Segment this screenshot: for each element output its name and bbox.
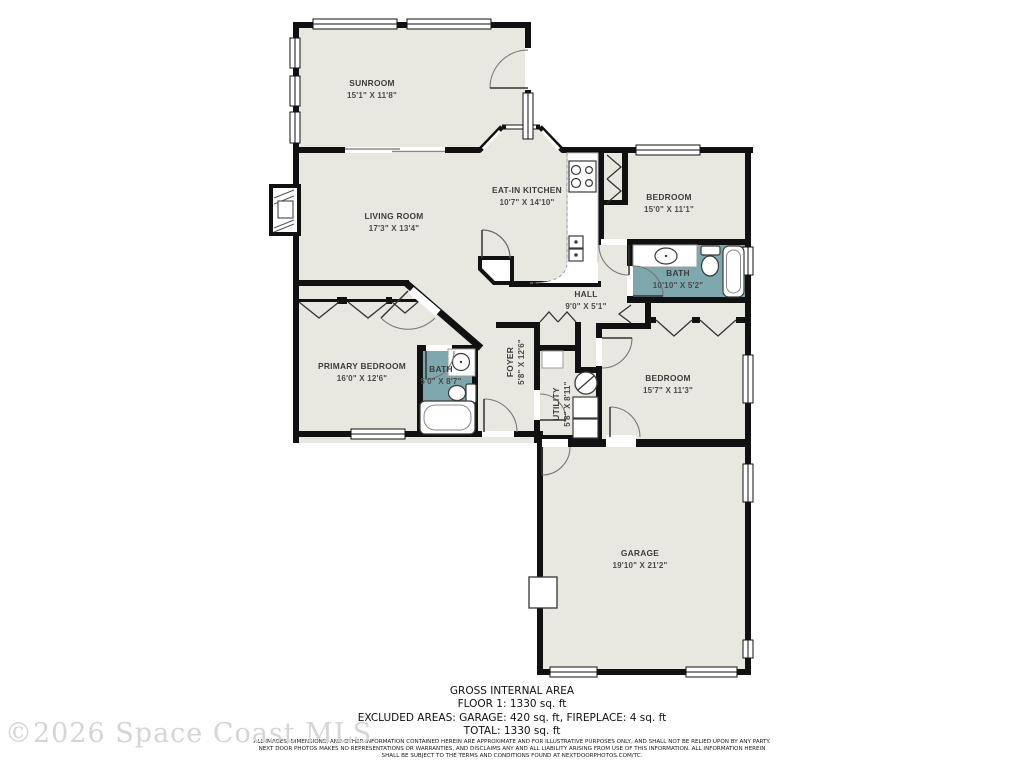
bedroom-1-dims: 15'0" X 11'1" [644, 205, 694, 214]
watermark: ©2026 Space Coast MLS [5, 718, 372, 749]
floor-plan-page: SUNROOM 15'1" X 11'8" LIVING ROOM 17'3" … [0, 0, 1024, 768]
room-sunroom [296, 25, 528, 147]
hall-label: HALL [574, 289, 597, 299]
garage-label: GARAGE [621, 548, 659, 558]
bath-1-dims: 10'10" X 5'2" [653, 281, 703, 290]
bedroom-1-label: BEDROOM [646, 192, 692, 202]
hall-dims: 9'0" X 5'1" [565, 302, 606, 311]
stove-icon [569, 161, 596, 192]
disclaimer-line: SHALL BE SUBJECT TO THE TERMS AND CONDIT… [0, 753, 1024, 760]
garage-dims: 19'10" X 21'2" [612, 561, 667, 570]
summary-floor: FLOOR 1: 1330 sq. ft [0, 698, 1024, 711]
bathtub-icon [420, 401, 475, 434]
bedroom-2-dims: 15'7" X 11'3" [643, 386, 693, 395]
water-heater [529, 577, 557, 608]
foyer-label: FOYER [505, 347, 515, 377]
kitchen-sink-icon [569, 236, 583, 261]
living-room-dims: 17'3" X 13'4" [369, 224, 419, 233]
washer-icon [575, 372, 597, 394]
dryer-icon [573, 397, 598, 438]
sunroom-label: SUNROOM [349, 78, 395, 88]
primary-bedroom-label: PRIMARY BEDROOM [318, 361, 406, 371]
bathtub-icon [723, 246, 744, 297]
foyer-dims: 5'8" X 12'6" [517, 339, 526, 385]
utility-dims: 5'8" X 8'11" [563, 381, 572, 426]
bath-2-label: BATH [429, 364, 453, 374]
kitchen-dims: 10'7" X 14'10" [499, 198, 554, 207]
sunroom-dims: 15'1" X 11'8" [347, 91, 397, 100]
room-garage [537, 443, 751, 675]
floor-plan-drawing: SUNROOM 15'1" X 11'8" LIVING ROOM 17'3" … [0, 0, 1024, 768]
living-room-label: LIVING ROOM [364, 211, 423, 221]
fireplace [271, 186, 299, 234]
bath-2-dims: 5'0" X 8'7" [420, 377, 461, 386]
toilet-icon [701, 246, 720, 276]
bath-1-label: BATH [666, 268, 690, 278]
bedroom-2-label: BEDROOM [645, 373, 691, 383]
shelf [542, 351, 563, 368]
primary-bedroom-dims: 16'0" X 12'6" [337, 374, 387, 383]
summary-title: GROSS INTERNAL AREA [0, 685, 1024, 698]
kitchen-label: EAT-IN KITCHEN [492, 185, 562, 195]
utility-label: UTILITY [551, 387, 561, 421]
